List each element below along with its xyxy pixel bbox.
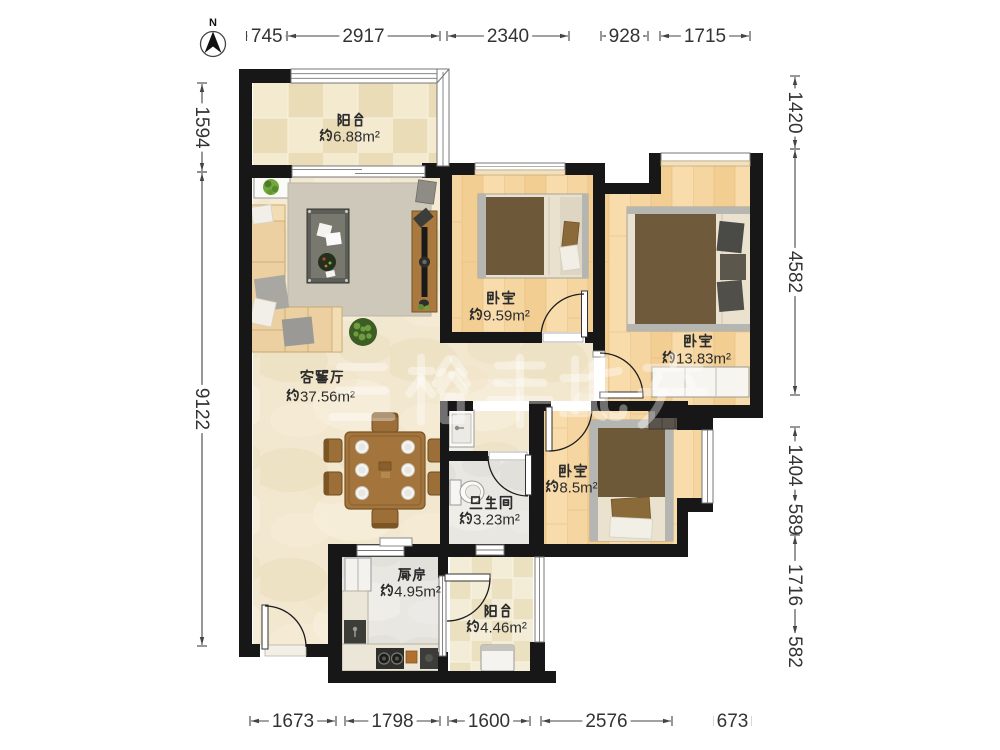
- svg-text:1673: 1673: [272, 711, 314, 732]
- svg-text:6.88m²: 6.88m²: [333, 128, 380, 145]
- svg-text:1420: 1420: [784, 91, 805, 133]
- svg-text:2917: 2917: [342, 26, 384, 47]
- svg-text:1404: 1404: [784, 444, 805, 487]
- svg-text:1798: 1798: [371, 711, 413, 732]
- svg-text:582: 582: [784, 636, 805, 668]
- svg-text:1594: 1594: [191, 106, 212, 149]
- svg-text:8.5m²: 8.5m²: [559, 479, 597, 496]
- svg-text:673: 673: [717, 711, 749, 732]
- svg-text:9122: 9122: [191, 388, 212, 430]
- svg-text:589: 589: [784, 504, 805, 536]
- svg-text:1715: 1715: [684, 26, 726, 47]
- svg-text:2576: 2576: [585, 711, 627, 732]
- svg-text:745: 745: [251, 26, 283, 47]
- svg-text:4.95m²: 4.95m²: [394, 583, 441, 600]
- svg-text:9.59m²: 9.59m²: [483, 307, 530, 324]
- svg-text:4582: 4582: [784, 251, 805, 293]
- svg-text:N: N: [209, 17, 217, 29]
- svg-text:2340: 2340: [487, 26, 529, 47]
- svg-text:928: 928: [609, 26, 641, 47]
- svg-text:3.23m²: 3.23m²: [473, 511, 520, 528]
- svg-text:1600: 1600: [468, 711, 510, 732]
- svg-text:4.46m²: 4.46m²: [480, 619, 527, 636]
- svg-text:1716: 1716: [784, 564, 805, 606]
